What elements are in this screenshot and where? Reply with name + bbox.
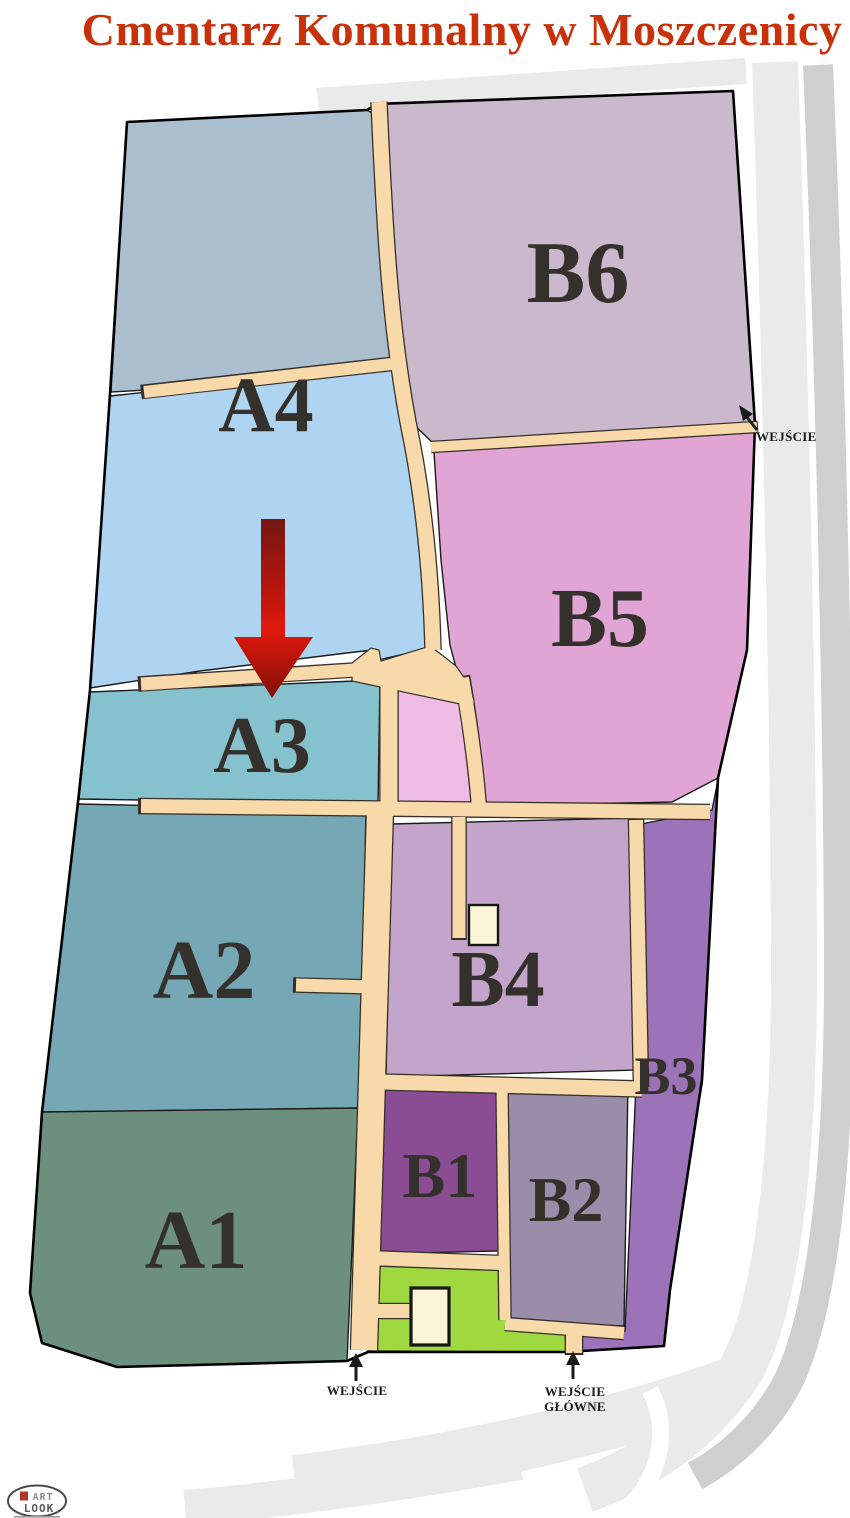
- entrance-west-label: WEJŚCIE: [327, 1383, 388, 1398]
- cemetery-map: A4 A3 A2 A1 B6 B5 B4 B3 B1 B2 WEJŚCIE WE…: [0, 0, 850, 1518]
- cemetery-map-page: A4 A3 A2 A1 B6 B5 B4 B3 B1 B2 WEJŚCIE WE…: [0, 0, 850, 1518]
- section-label-b3[interactable]: B3: [634, 1046, 697, 1106]
- section-label-a1[interactable]: A1: [145, 1194, 248, 1287]
- section-label-b1[interactable]: B1: [403, 1140, 478, 1211]
- logo-tagline-bar: [14, 1516, 60, 1518]
- entrance-side-label: WEJŚCIE: [756, 429, 817, 444]
- section-label-b2[interactable]: B2: [529, 1164, 604, 1235]
- section-label-b6[interactable]: B6: [527, 225, 630, 322]
- logo-line2: LOOK: [24, 1502, 55, 1515]
- section-label-a4[interactable]: A4: [218, 361, 313, 448]
- artlook-logo: ART LOOK: [8, 1486, 66, 1518]
- entrance-main: WEJŚCIE GŁÓWNE: [544, 1351, 606, 1414]
- section-unlabeled[interactable]: [111, 110, 398, 392]
- section-label-b4[interactable]: B4: [451, 936, 544, 1024]
- section-label-b5[interactable]: B5: [551, 572, 649, 665]
- section-label-a3[interactable]: A3: [213, 702, 311, 790]
- section-label-a2[interactable]: A2: [153, 924, 256, 1017]
- logo-red-square: [20, 1492, 28, 1501]
- page-title: Cmentarz Komunalny w Moszczenicy: [82, 4, 843, 55]
- building-chapel: [411, 1288, 449, 1345]
- entrance-main-label-line2: GŁÓWNE: [544, 1399, 606, 1414]
- entrance-main-label-line1: WEJŚCIE: [545, 1384, 606, 1399]
